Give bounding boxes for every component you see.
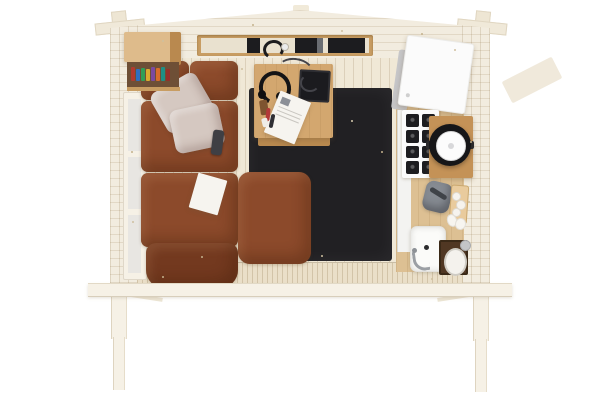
book-spine [136, 69, 140, 81]
book-row [131, 67, 175, 81]
book-spine [156, 68, 160, 81]
porch-post-left-lower [113, 337, 125, 390]
media-slot [295, 38, 317, 53]
washstand-basin [444, 248, 467, 276]
sofa-end-cushion [146, 243, 238, 288]
media-slot [328, 38, 365, 53]
headphone-pad [258, 90, 266, 99]
door-pane [128, 215, 141, 273]
wood-speckles [0, 0, 2, 2]
book-spine [141, 68, 145, 81]
porch-beam [88, 283, 512, 296]
book-spine [151, 67, 155, 81]
bookshelf-lip [127, 87, 180, 91]
ottoman [238, 172, 311, 264]
towel-roll [460, 240, 471, 251]
fridge [397, 35, 474, 115]
book-spine [161, 67, 165, 81]
pot-lid-knob [448, 143, 454, 149]
burner-cell [406, 146, 419, 159]
door-pane [128, 157, 141, 209]
kettle-handle [429, 186, 448, 200]
burner-cell [406, 130, 419, 143]
media-slot-grey [317, 38, 323, 53]
magazine-cover-block [280, 97, 291, 107]
roof-eave-right [502, 57, 563, 104]
book-spine [146, 69, 150, 81]
faucet-tip [412, 248, 417, 253]
media-slot [247, 38, 260, 53]
book-spine [166, 69, 170, 81]
book-spine [131, 67, 135, 81]
headphone-cable-loop [300, 74, 320, 92]
porch-post-right-lower [475, 339, 487, 392]
fridge-hinge-dot [406, 93, 411, 98]
cup-on-shelf [281, 43, 289, 51]
burner-cell [406, 114, 419, 127]
cabin-aerial-render [0, 0, 600, 400]
pot-lid [436, 131, 466, 161]
door-pane [128, 99, 141, 151]
bookshelf-side [170, 32, 181, 65]
burner-cell [406, 161, 419, 174]
